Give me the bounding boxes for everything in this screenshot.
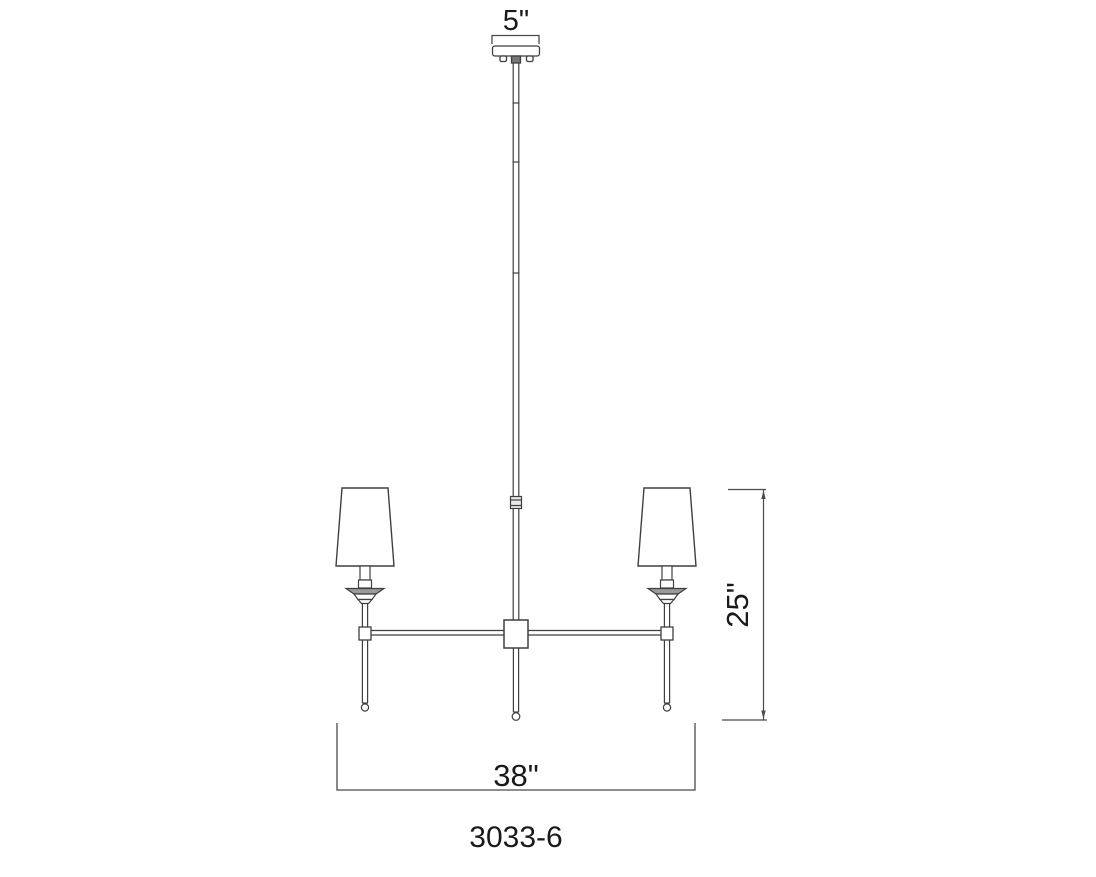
chandelier-diagram: 5": [0, 0, 1096, 877]
candle-left: [360, 566, 370, 580]
canopy-collar: [512, 56, 521, 63]
light-right: [638, 488, 696, 711]
center-finial: [512, 648, 520, 720]
rod-coupler: [511, 497, 522, 509]
down-rod: [513, 63, 520, 620]
bobeche-left: [346, 589, 384, 595]
dim-width-label: 38": [493, 758, 539, 793]
dimension-drawing-page: 5": [0, 0, 1096, 877]
arm-joint-left: [359, 627, 371, 640]
rod-coupler-sleeve: [511, 497, 522, 509]
model-number: 3033-6: [469, 821, 562, 854]
finial-ball-left: [361, 704, 368, 711]
arm-joint-right: [661, 627, 673, 640]
bobeche-cup-right: [656, 594, 678, 600]
bobeche-right: [648, 589, 686, 595]
shade-right: [638, 488, 696, 566]
canopy-screw-right: [527, 56, 534, 62]
canopy-screw-left: [500, 56, 507, 62]
candle-collar-left: [359, 580, 372, 588]
finial-ball-right: [663, 704, 670, 711]
canopy: [493, 46, 540, 63]
canopy-body: [493, 46, 540, 56]
bobeche-neck-left: [358, 600, 372, 604]
shade-left: [336, 488, 394, 566]
center-hub: [504, 620, 528, 648]
dim-height-label: 25": [720, 582, 755, 628]
bobeche-neck-right: [660, 600, 674, 604]
candle-collar-right: [661, 580, 674, 588]
finial-ball-center: [512, 713, 520, 721]
dim-canopy-width-label: 5": [503, 5, 529, 37]
candle-right: [662, 566, 672, 580]
light-left: [336, 488, 394, 711]
dim-height-arrow-top: [761, 491, 765, 500]
bobeche-cup-left: [354, 594, 376, 600]
dim-height-arrow-bottom: [761, 711, 765, 720]
